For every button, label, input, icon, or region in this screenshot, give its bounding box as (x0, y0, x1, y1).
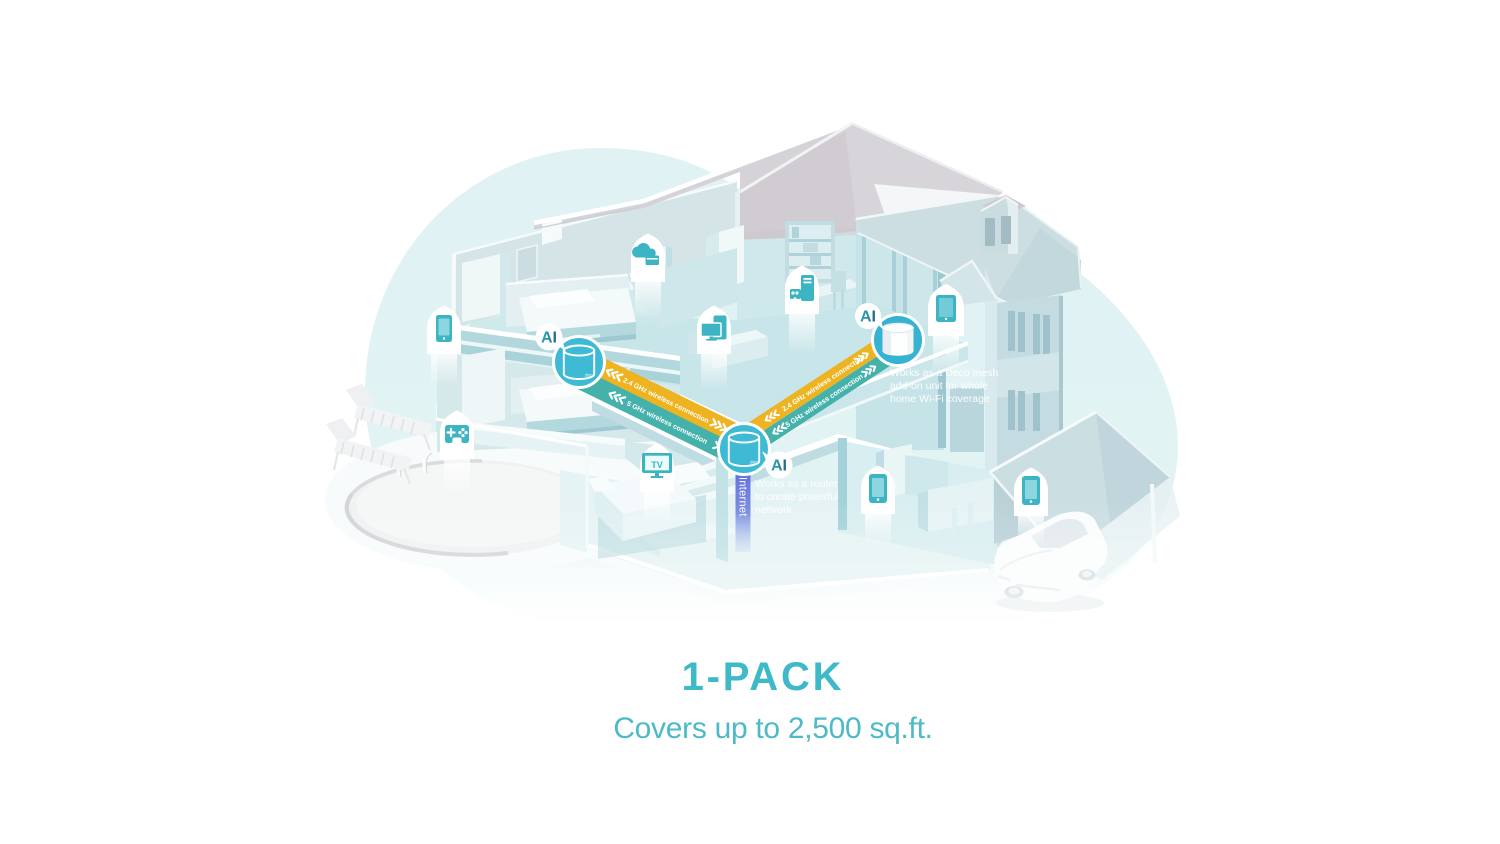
svg-text:AI: AI (771, 458, 787, 475)
svg-text:deco: deco (585, 373, 595, 378)
svg-text:Works as a router: Works as a router (755, 478, 838, 490)
svg-text:to create powerful: to create powerful (755, 491, 838, 503)
svg-text:AI: AI (541, 330, 557, 347)
svg-text:1-PACK: 1-PACK (682, 655, 845, 699)
svg-text:network: network (755, 504, 793, 516)
svg-text:add-on unit for whole: add-on unit for whole (890, 380, 988, 392)
svg-text:Covers up to 2,500 sq.ft.: Covers up to 2,500 sq.ft. (613, 712, 932, 745)
svg-text:Internet: Internet (737, 477, 749, 517)
svg-text:AI: AI (860, 309, 876, 326)
svg-text:TV: TV (651, 460, 663, 470)
svg-text:home Wi-Fi coverage: home Wi-Fi coverage (890, 393, 990, 405)
svg-text:deco: deco (750, 460, 760, 465)
